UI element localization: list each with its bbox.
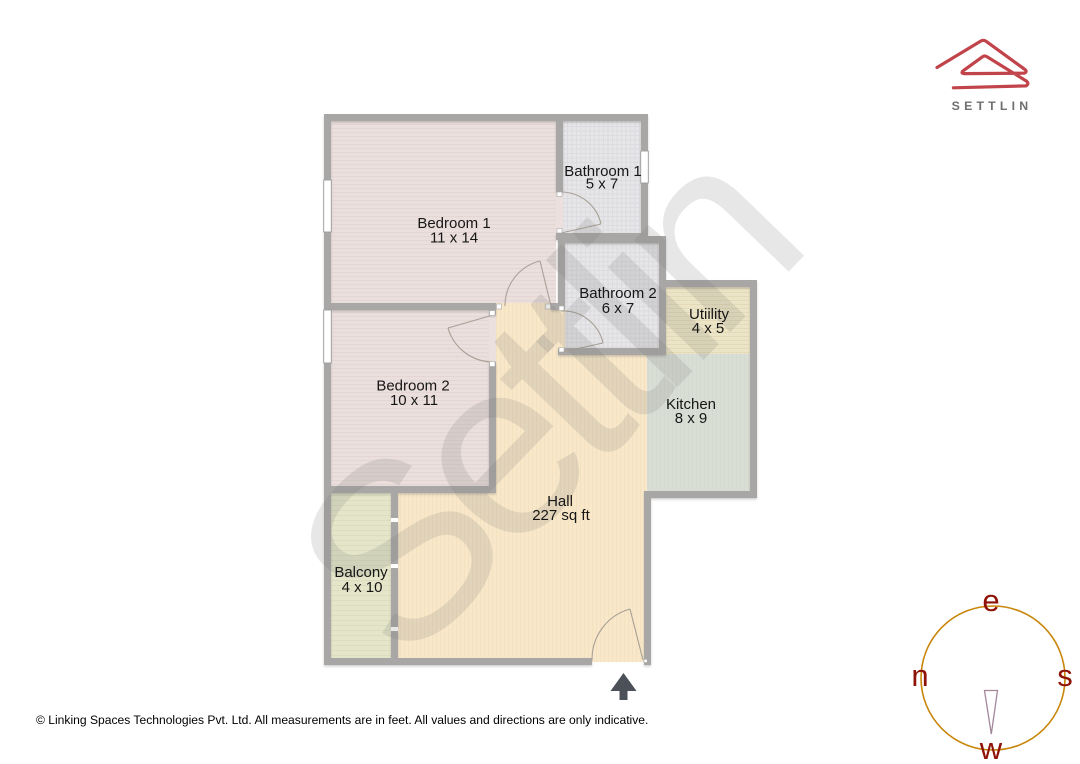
svg-text:6 x 7: 6 x 7 bbox=[602, 300, 635, 317]
svg-text:e: e bbox=[982, 583, 999, 618]
svg-text:© Linking Spaces Technologies: © Linking Spaces Technologies Pvt. Ltd. … bbox=[36, 713, 648, 727]
svg-text:s: s bbox=[1057, 658, 1073, 693]
svg-text:10 x 11: 10 x 11 bbox=[390, 392, 438, 409]
svg-text:11 x 14: 11 x 14 bbox=[430, 230, 478, 247]
svg-text:w: w bbox=[979, 731, 1003, 764]
svg-text:227 sq ft: 227 sq ft bbox=[532, 507, 590, 524]
svg-text:5 x 7: 5 x 7 bbox=[586, 176, 619, 193]
svg-text:8 x 9: 8 x 9 bbox=[675, 410, 708, 427]
svg-text:4 x 10: 4 x 10 bbox=[342, 579, 383, 596]
svg-text:4 x 5: 4 x 5 bbox=[692, 320, 725, 337]
svg-text:n: n bbox=[911, 658, 928, 693]
svg-text:SETTLIN: SETTLIN bbox=[952, 99, 1033, 113]
